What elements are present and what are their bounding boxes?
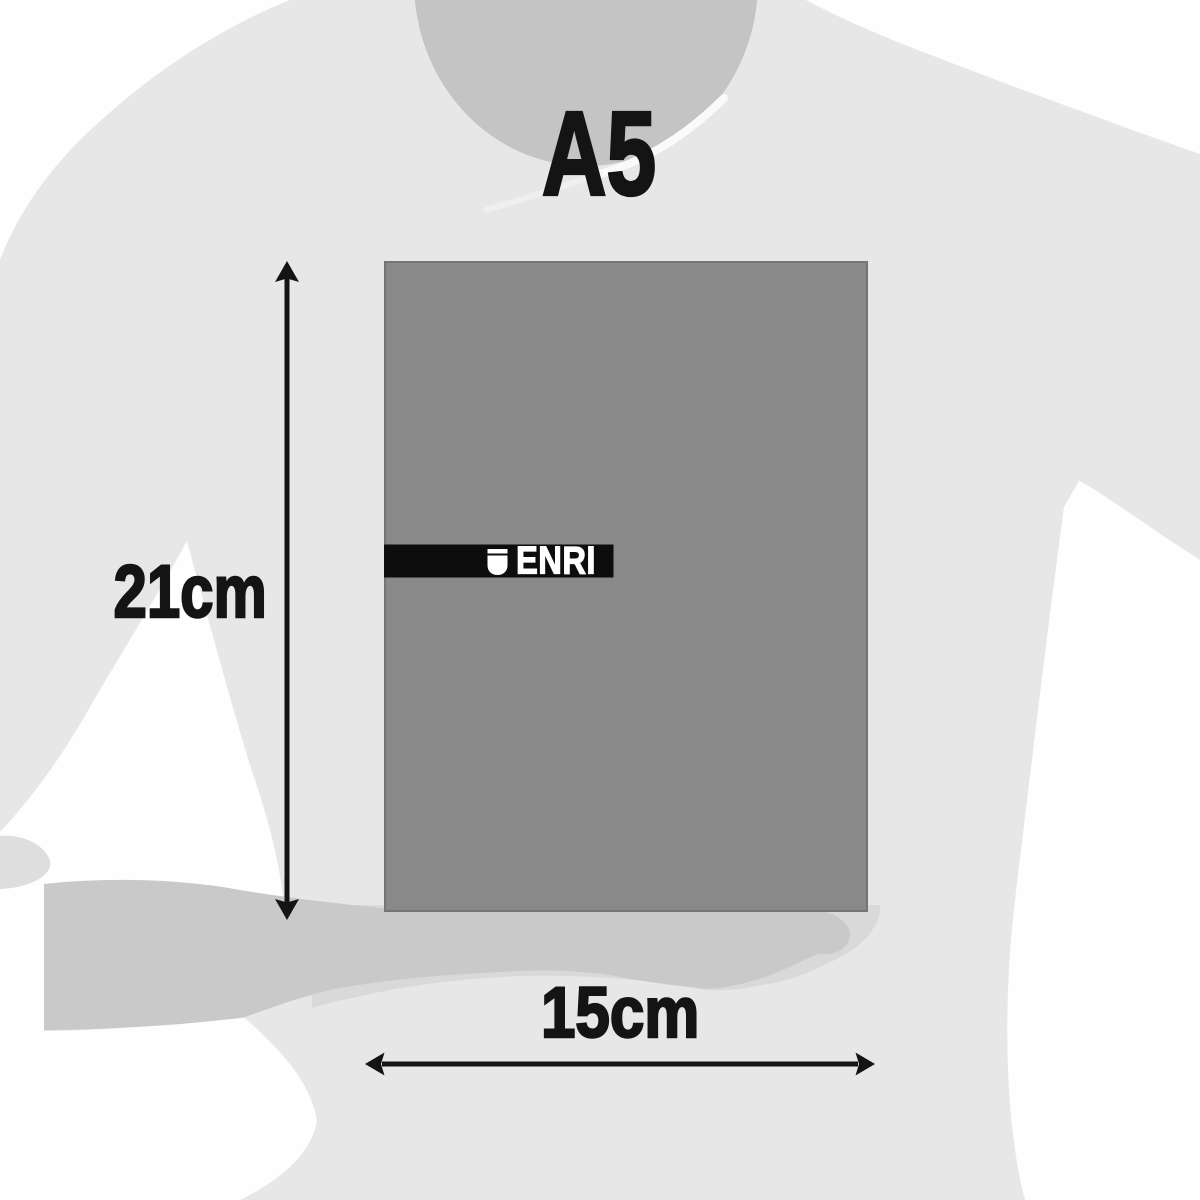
svg-text:ENRI: ENRI [516, 539, 596, 582]
svg-text:15cm: 15cm [541, 974, 699, 1053]
svg-text:A5: A5 [542, 88, 656, 220]
svg-text:21cm: 21cm [114, 551, 267, 633]
